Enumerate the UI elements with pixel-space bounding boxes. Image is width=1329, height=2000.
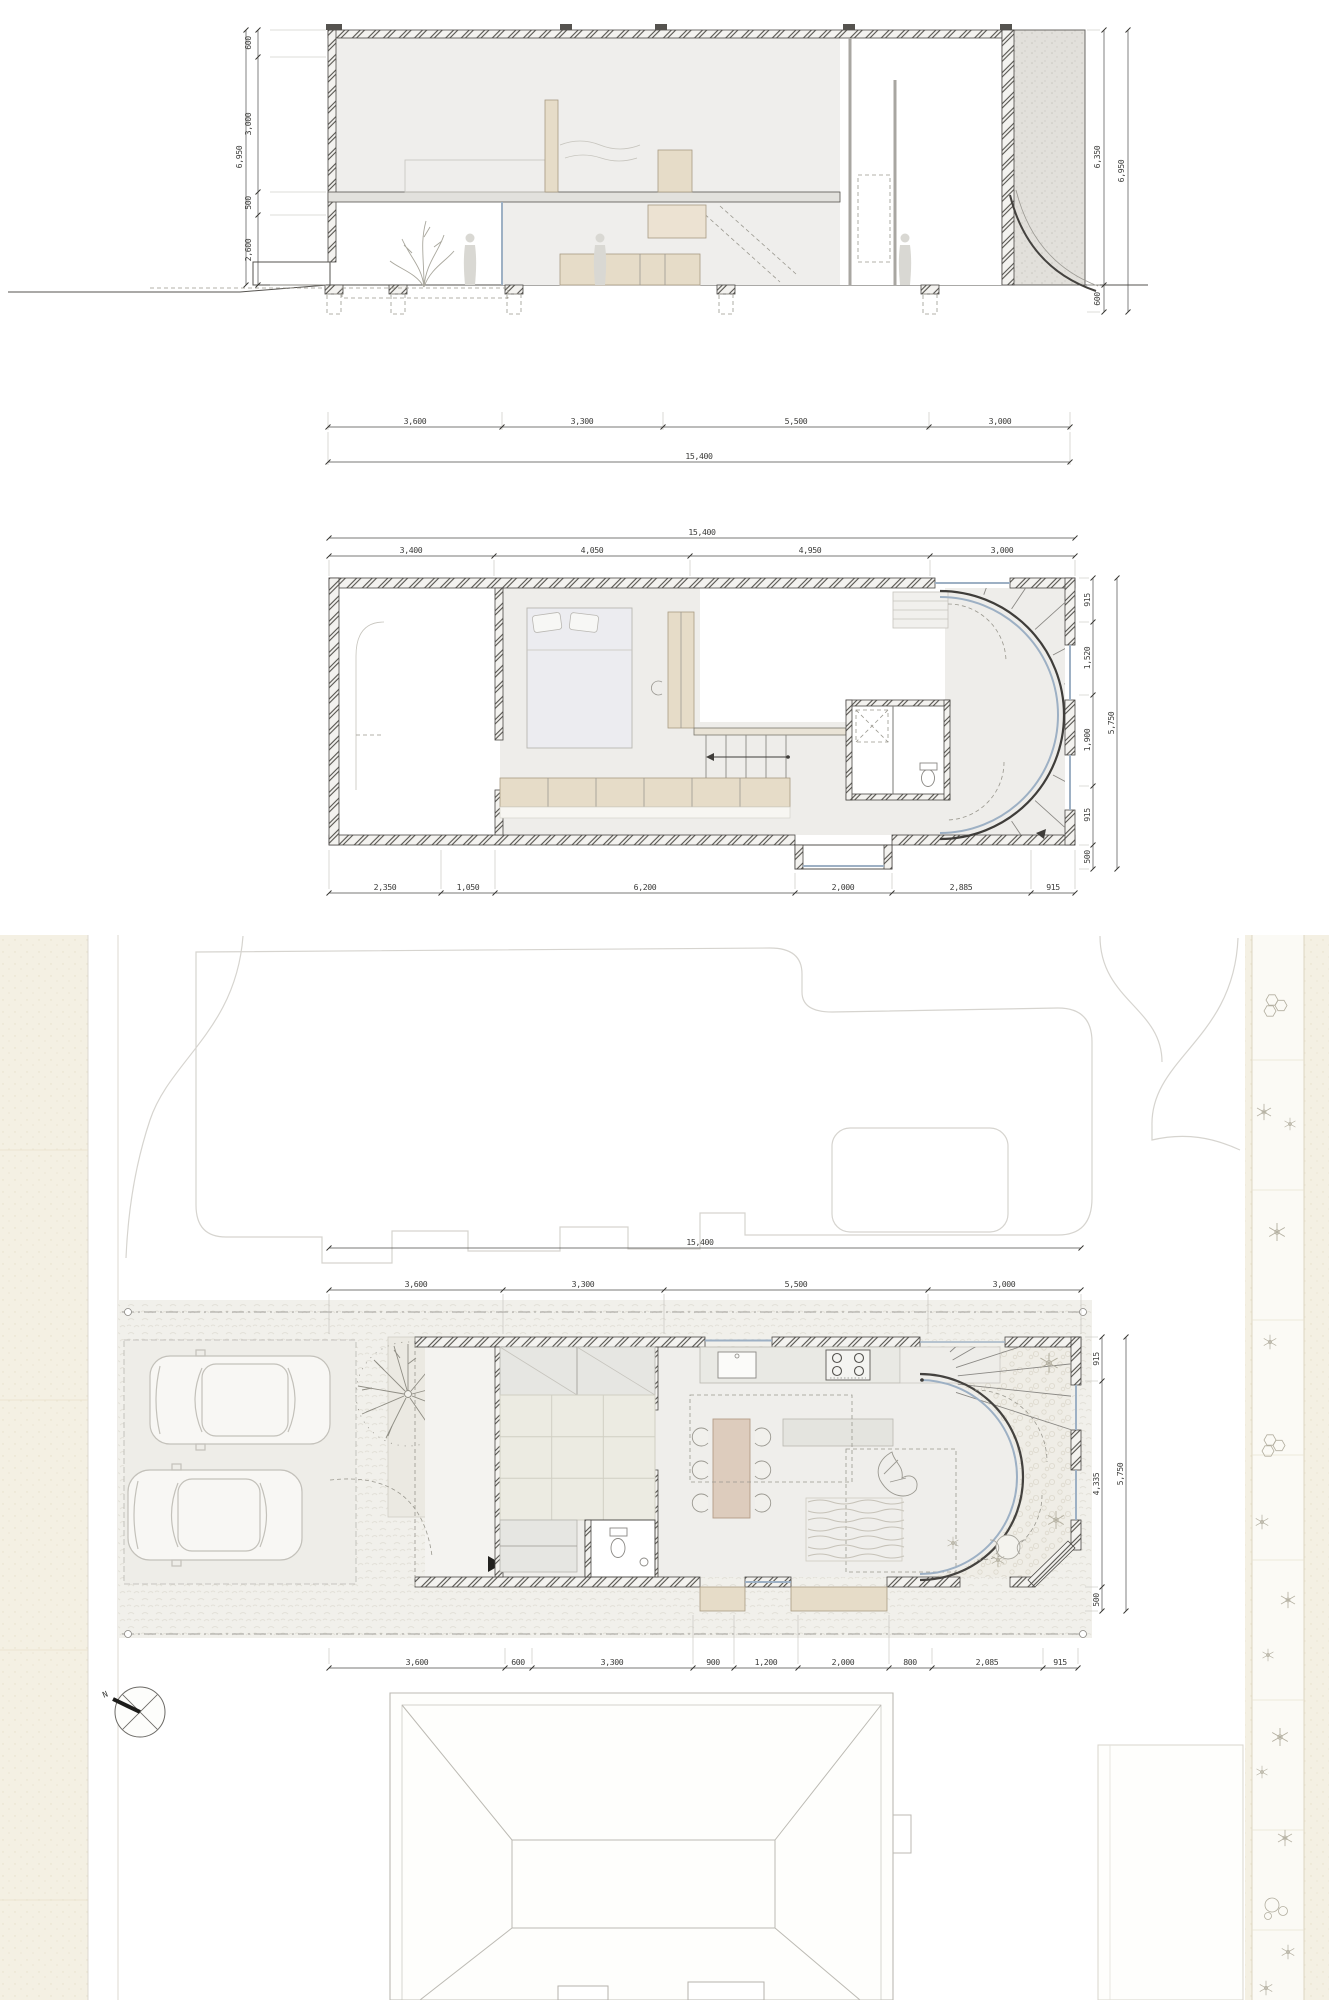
dim-label: 915 — [1046, 882, 1060, 892]
stove-icon — [826, 1350, 870, 1380]
island-counter — [783, 1419, 893, 1446]
chair-icon — [755, 1494, 771, 1512]
chair-icon — [692, 1461, 708, 1479]
chair-icon — [692, 1428, 708, 1446]
chair-icon — [755, 1461, 771, 1479]
dim-label: 5,750 — [1106, 711, 1116, 734]
context-outlines — [126, 936, 1240, 1263]
car — [128, 1464, 302, 1566]
dim-label: 3,000 — [993, 1279, 1016, 1289]
street-verge-left — [0, 935, 88, 2000]
dim-label: 3,300 — [572, 1279, 595, 1289]
upper-floor-plan: 15,400 3,400 4,050 4,950 3,000 915 1,520… — [327, 521, 1136, 909]
north-label: N — [101, 1689, 109, 1700]
parapet-cap — [326, 24, 342, 30]
dim-label: 4,335 — [1091, 1472, 1101, 1495]
neighbor-roof — [390, 1693, 911, 2000]
chair-icon — [755, 1428, 771, 1446]
dim-label: 2,600 — [243, 238, 253, 261]
chair-icon — [692, 1494, 708, 1512]
stair-railing — [694, 728, 846, 735]
north-arrow-icon: N — [101, 1687, 165, 1737]
car — [150, 1350, 330, 1450]
tree-icon — [390, 221, 454, 287]
dim-label: 4,950 — [799, 545, 822, 555]
dim-label: 3,600 — [406, 1657, 429, 1667]
left-wall — [328, 30, 336, 262]
dim-label: 3,300 — [571, 416, 594, 426]
dim-label: 3,300 — [601, 1657, 624, 1667]
footings — [325, 285, 939, 314]
dim-label: 4,050 — [581, 545, 604, 555]
dim-label: 15,400 — [688, 527, 716, 537]
dim-label: 5,500 — [785, 1279, 808, 1289]
roof-slab — [328, 30, 1085, 38]
dim-label: 6,350 — [1092, 145, 1102, 168]
dim-label: 915 — [1082, 593, 1092, 607]
dim-label: 5,750 — [1115, 1462, 1125, 1485]
dim-label: 500 — [243, 196, 253, 210]
dim-label: 915 — [1082, 808, 1092, 822]
ground-line — [8, 285, 1148, 292]
dim-label: 1,900 — [1082, 728, 1092, 751]
dim-label: 6,200 — [634, 882, 657, 892]
dim-label: 15,400 — [686, 1237, 714, 1247]
dim-label: 2,000 — [832, 882, 855, 892]
dim-label: 600 — [243, 36, 253, 50]
dim-label: 6,950 — [234, 145, 244, 168]
toilet-room — [585, 1520, 655, 1577]
dim-label: 915 — [1053, 1657, 1067, 1667]
dim-label: 3,400 — [400, 545, 423, 555]
sink-icon — [718, 1352, 756, 1378]
section-drawing: 600 3,000 500 2,600 6,950 6,350 600 6,95… — [8, 24, 1148, 465]
dining-table — [692, 1419, 770, 1518]
dim-label: 6,950 — [1116, 159, 1126, 182]
dim-label: 1,200 — [755, 1657, 778, 1667]
stair-tower-section — [1002, 30, 1098, 291]
toilet-icon — [611, 1539, 625, 1558]
site-plan: N 15,400 3,600 3,300 5,500 3,000 3,600 6… — [0, 935, 1329, 2000]
bay-window — [795, 845, 892, 869]
dim-label: 15,400 — [685, 451, 713, 461]
architectural-drawing: 600 3,000 500 2,600 6,950 6,350 600 6,95… — [0, 0, 1329, 2000]
dim-label: 3,600 — [405, 1279, 428, 1289]
floor-slab — [328, 192, 840, 202]
dim-label: 1,050 — [457, 882, 480, 892]
porch-wall — [253, 262, 330, 285]
bed — [527, 608, 632, 748]
dim-label: 600 — [1092, 292, 1102, 306]
dim-label: 500 — [1082, 850, 1092, 864]
double-height-void — [840, 38, 1002, 285]
dim-label: 2,000 — [832, 1657, 855, 1667]
dim-label: 2,885 — [950, 882, 973, 892]
person-figure — [464, 234, 476, 286]
void-room — [339, 588, 500, 835]
dim-label: 5,500 — [785, 416, 808, 426]
dim-label: 3,600 — [404, 416, 427, 426]
storage-cabinets — [500, 778, 790, 818]
dim-label: 2,085 — [976, 1657, 999, 1667]
dim-label: 600 — [511, 1657, 525, 1667]
neighbor-building — [1098, 1745, 1243, 2000]
bathroom — [846, 700, 950, 800]
dim-label: 3,000 — [989, 416, 1012, 426]
drawing-sheet: 600 3,000 500 2,600 6,950 6,350 600 6,95… — [0, 0, 1329, 2000]
wardrobe-section — [545, 100, 558, 192]
garden-table — [996, 1535, 1020, 1559]
dim-label: 3,000 — [243, 112, 253, 135]
dim-label: 915 — [1091, 1352, 1101, 1366]
dim-label: 800 — [903, 1657, 917, 1667]
upper-floor-room — [336, 38, 840, 192]
dim-label: 2,350 — [374, 882, 397, 892]
kitchen-counter — [700, 1347, 1000, 1383]
dim-label: 1,520 — [1082, 646, 1092, 669]
dresser-section — [658, 150, 692, 192]
dim-label: 500 — [1091, 1593, 1101, 1607]
entry-hall — [425, 1347, 500, 1577]
dim-label: 3,000 — [991, 545, 1014, 555]
footpath — [1252, 935, 1304, 2000]
toilet-icon — [922, 770, 935, 787]
dim-label: 900 — [706, 1657, 720, 1667]
